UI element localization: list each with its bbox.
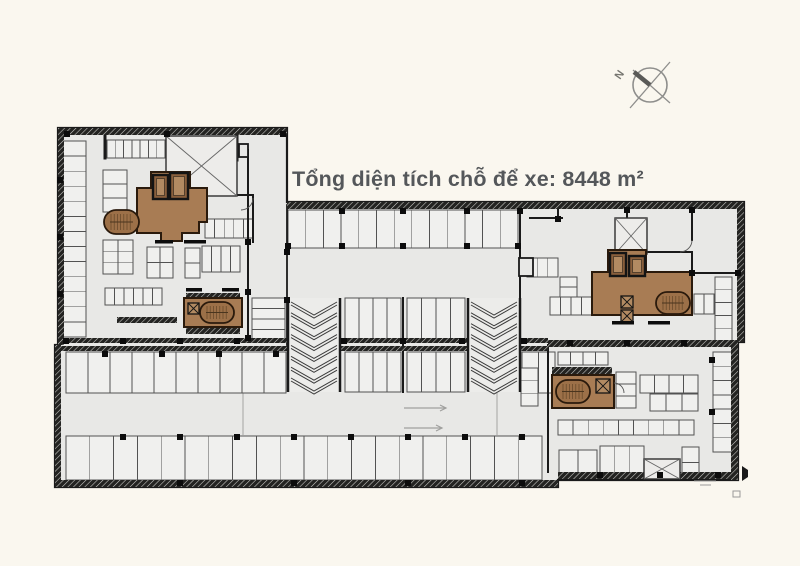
parking-stall-group bbox=[202, 246, 240, 272]
structural-column bbox=[177, 338, 183, 344]
core-south bbox=[184, 298, 242, 327]
structural-column bbox=[519, 434, 525, 440]
hatch-band bbox=[58, 338, 288, 343]
structural-column bbox=[400, 243, 406, 249]
structural-column bbox=[689, 270, 695, 276]
structural-column bbox=[57, 234, 63, 240]
wheel-stop-dash bbox=[155, 240, 173, 244]
structural-column bbox=[735, 270, 741, 276]
structural-column bbox=[234, 434, 240, 440]
structural-column bbox=[709, 357, 715, 363]
stall-outline bbox=[288, 210, 518, 248]
structural-column bbox=[715, 472, 721, 478]
parking-stall-group bbox=[185, 248, 200, 278]
shaft-box bbox=[519, 258, 533, 276]
parking-stall-group bbox=[66, 436, 542, 480]
structural-column bbox=[164, 131, 170, 137]
stall-outline bbox=[205, 219, 253, 238]
north-bar bbox=[634, 72, 650, 85]
core-southeast bbox=[552, 375, 614, 408]
structural-column bbox=[348, 434, 354, 440]
hatch-band bbox=[552, 367, 612, 374]
hatch-band bbox=[117, 317, 177, 323]
structural-column bbox=[339, 208, 345, 214]
stall-outline bbox=[62, 141, 86, 337]
parking-stall-group bbox=[616, 372, 636, 408]
elevator-cab bbox=[633, 260, 642, 273]
structural-column bbox=[567, 340, 573, 346]
parking-stall-group bbox=[558, 420, 694, 435]
hatch-band bbox=[340, 346, 468, 351]
parking-stall-group bbox=[560, 277, 577, 297]
void-area bbox=[615, 218, 647, 254]
elevator-cab bbox=[614, 257, 623, 273]
parking-stall-group bbox=[713, 352, 732, 452]
structural-column bbox=[102, 351, 108, 357]
structural-column bbox=[159, 351, 165, 357]
parking-stall-group bbox=[345, 298, 401, 341]
structural-column bbox=[291, 434, 297, 440]
structural-column bbox=[245, 335, 251, 341]
structural-column bbox=[517, 208, 523, 214]
hatch-band bbox=[58, 346, 288, 351]
parking-stall-group bbox=[521, 368, 538, 406]
structural-column bbox=[234, 338, 240, 344]
structural-column bbox=[624, 340, 630, 346]
structural-column bbox=[245, 239, 251, 245]
structural-column bbox=[405, 434, 411, 440]
stall-outline bbox=[558, 420, 694, 435]
hatch-band bbox=[55, 480, 558, 487]
parking-stall-group bbox=[205, 219, 253, 238]
structural-column bbox=[177, 434, 183, 440]
stall-outline bbox=[616, 372, 636, 408]
parking-stall-group bbox=[107, 140, 165, 158]
structural-column bbox=[57, 177, 63, 183]
elevator-cab bbox=[174, 177, 185, 196]
structural-column bbox=[120, 338, 126, 344]
parking-stall-group bbox=[62, 141, 86, 337]
structural-column bbox=[291, 480, 297, 486]
structural-column bbox=[464, 243, 470, 249]
north-label: N bbox=[613, 68, 627, 81]
ramp-chevrons bbox=[288, 298, 340, 394]
hatch-band bbox=[58, 128, 287, 135]
structural-column bbox=[521, 338, 527, 344]
parking-stall-group bbox=[252, 298, 285, 340]
structural-column bbox=[400, 338, 406, 344]
parking-stall-group bbox=[147, 247, 173, 278]
structural-column bbox=[464, 208, 470, 214]
structural-column bbox=[689, 207, 695, 213]
structural-column bbox=[519, 480, 525, 486]
wheel-stop-dash bbox=[612, 321, 634, 325]
parking-stall-group bbox=[715, 277, 732, 341]
parking-stall-group bbox=[103, 240, 133, 274]
structural-column bbox=[657, 472, 663, 478]
structural-column bbox=[284, 297, 290, 303]
wheel-stop-dash bbox=[222, 288, 239, 292]
structural-column bbox=[57, 291, 63, 297]
wheel-stop-dash bbox=[184, 240, 206, 244]
structural-column bbox=[177, 480, 183, 486]
structural-column bbox=[341, 338, 347, 344]
structural-column bbox=[681, 340, 687, 346]
hatch-band bbox=[520, 346, 548, 351]
parking-stall-group bbox=[345, 352, 401, 392]
parking-stall-group bbox=[407, 298, 465, 341]
structural-column bbox=[339, 243, 345, 249]
parking-stall-group bbox=[288, 210, 518, 248]
structural-column bbox=[273, 351, 279, 357]
structural-column bbox=[285, 243, 291, 249]
plan-title: Tổng diện tích chỗ để xe: 8448 m² bbox=[292, 167, 644, 192]
parking-stall-group bbox=[558, 352, 608, 365]
hatch-band bbox=[186, 328, 240, 334]
ramp-chevrons bbox=[468, 298, 520, 394]
parking-stall-group bbox=[407, 352, 465, 392]
structural-column bbox=[459, 338, 465, 344]
structural-column bbox=[555, 216, 561, 222]
ramp-floor bbox=[468, 298, 520, 392]
parking-stall-group bbox=[550, 297, 592, 315]
structural-column bbox=[284, 249, 290, 255]
parking-floor-plan: N bbox=[0, 0, 800, 566]
stall-outline bbox=[713, 352, 732, 452]
structural-column bbox=[280, 131, 286, 137]
corner-box bbox=[733, 491, 740, 497]
wheel-stop-dash bbox=[648, 321, 670, 325]
structural-column bbox=[245, 289, 251, 295]
stall-outline bbox=[107, 140, 165, 158]
wheel-stop-dash bbox=[186, 288, 202, 292]
floor-plan-page: N Tổng diện tích chỗ để xe: 8448 m² bbox=[0, 0, 800, 566]
structural-column bbox=[120, 434, 126, 440]
structural-column bbox=[64, 131, 70, 137]
structural-column bbox=[624, 207, 630, 213]
structural-column bbox=[462, 434, 468, 440]
hatch-band bbox=[287, 202, 744, 209]
structural-column bbox=[400, 208, 406, 214]
hatch-band bbox=[548, 340, 737, 347]
shaft-box bbox=[239, 144, 248, 157]
hatch-band bbox=[731, 342, 738, 480]
parking-stall-group bbox=[66, 352, 286, 393]
parking-stall-group bbox=[640, 375, 698, 393]
parking-stall-group bbox=[103, 170, 127, 212]
structural-column bbox=[709, 409, 715, 415]
structural-column bbox=[216, 351, 222, 357]
elevator-cab bbox=[157, 179, 165, 196]
structural-column bbox=[63, 338, 69, 344]
corner-flag bbox=[742, 466, 748, 481]
stall-outline bbox=[650, 394, 698, 411]
structural-column bbox=[515, 243, 521, 249]
parking-stall-group bbox=[105, 288, 162, 305]
parking-stall-group bbox=[650, 394, 698, 411]
stall-outline bbox=[103, 170, 127, 212]
stall-outline bbox=[521, 368, 538, 406]
north-arrow: N bbox=[613, 62, 670, 108]
structural-column bbox=[597, 472, 603, 478]
stall-outline bbox=[715, 277, 732, 341]
hatch-band bbox=[55, 345, 61, 487]
structural-column bbox=[405, 480, 411, 486]
ramp-floor bbox=[288, 298, 340, 392]
